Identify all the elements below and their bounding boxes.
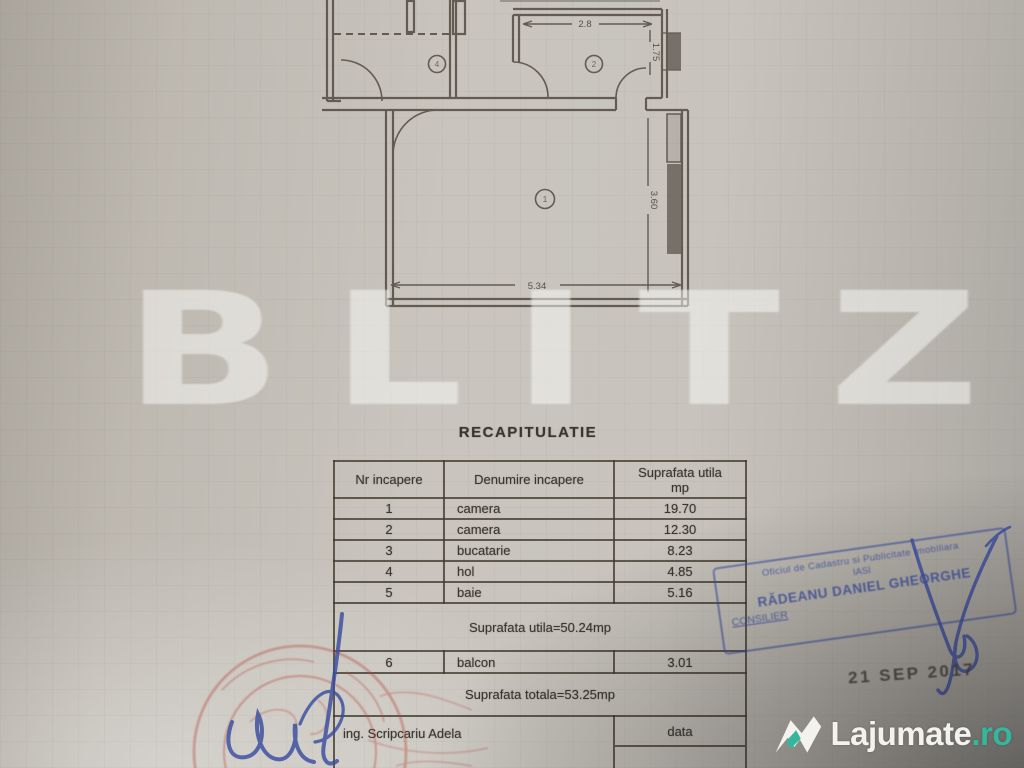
lajumate-name: Lajumate [830, 715, 971, 752]
photographed-floorplan-document: 2.8 1.75 3.60 5.34 4 2 1 BLITZ RECAPITUL… [0, 0, 1024, 768]
signature-left [228, 614, 343, 764]
lajumate-watermark: Lajumate.ro [772, 710, 1012, 758]
lajumate-wordmark: Lajumate.ro [830, 715, 1012, 753]
stamps-and-signatures [0, 0, 1024, 768]
lajumate-logo-icon [772, 710, 824, 758]
lajumate-tld: .ro [971, 715, 1012, 752]
red-round-stamp [194, 646, 488, 768]
